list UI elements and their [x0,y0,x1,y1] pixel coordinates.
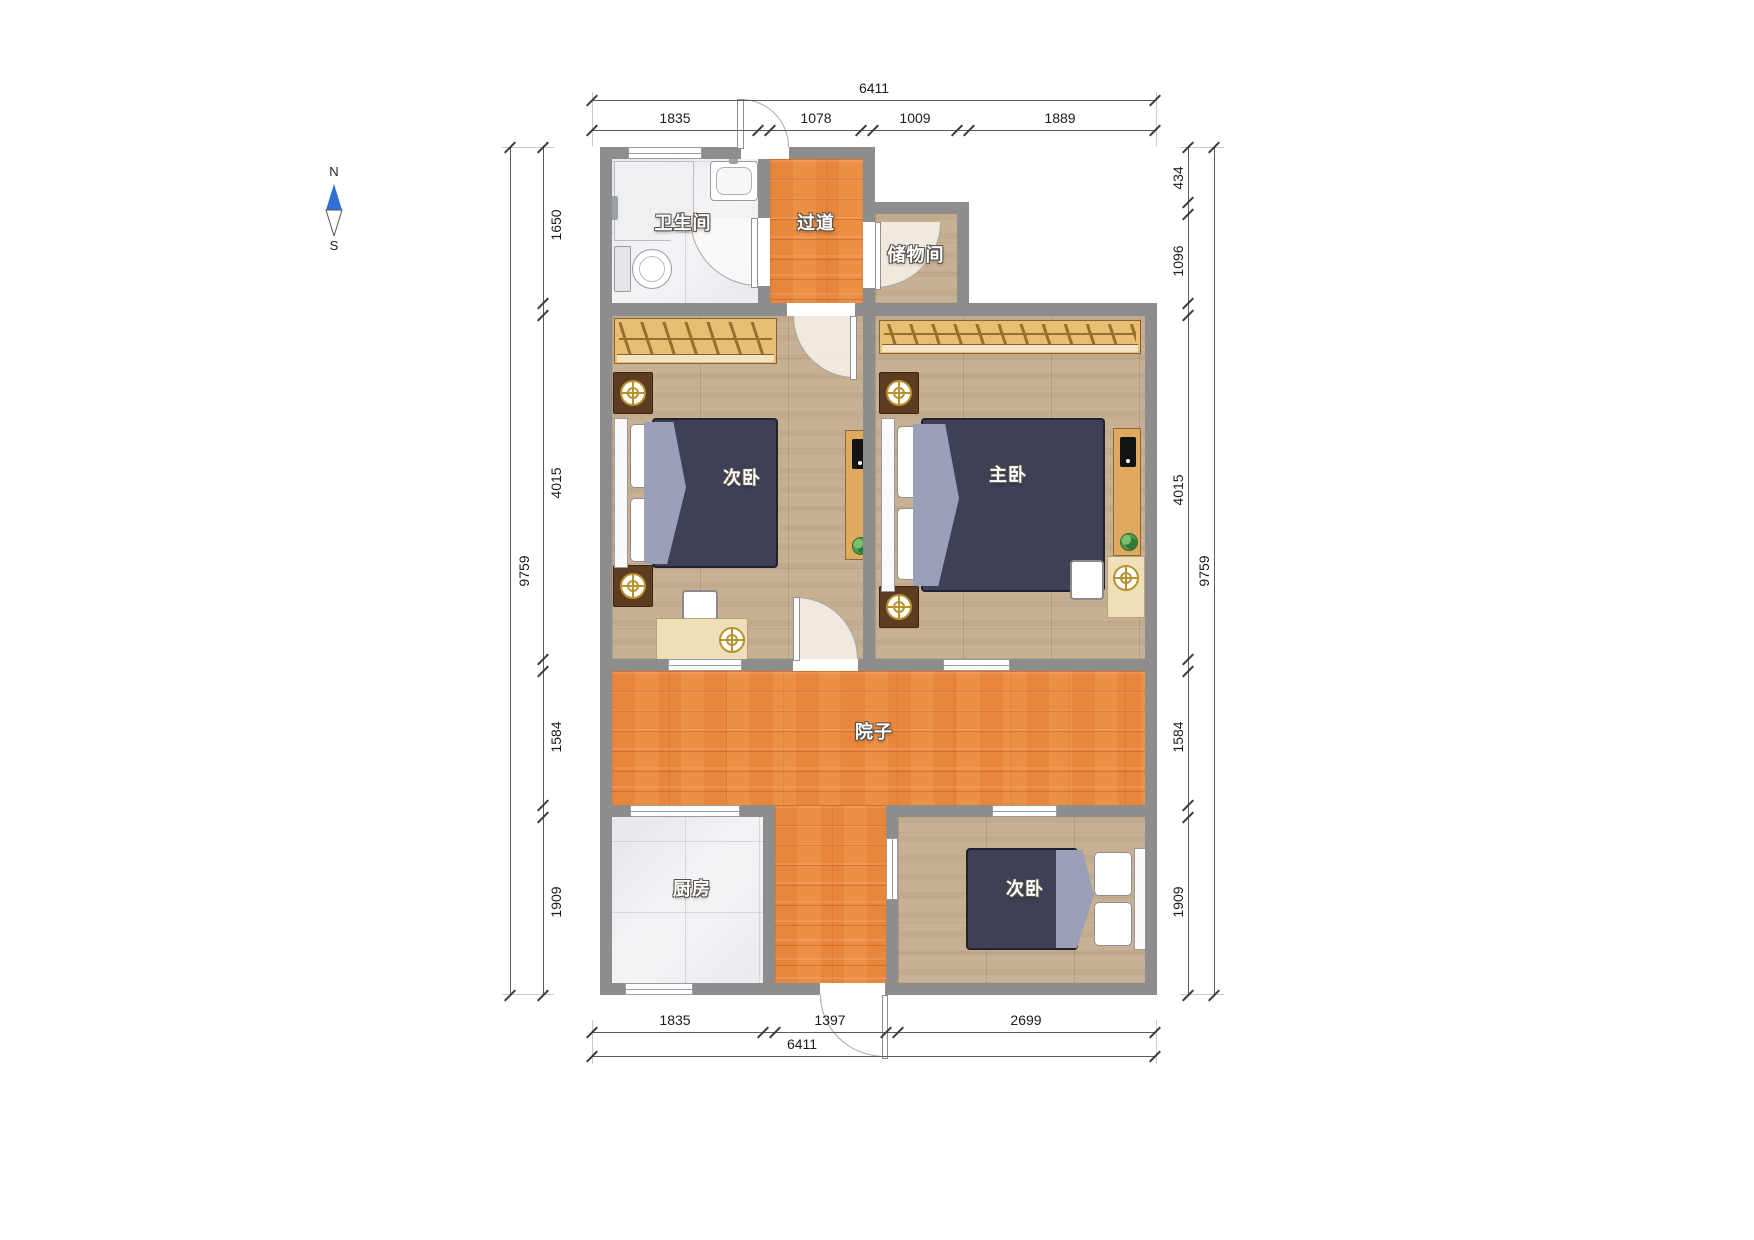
door-opening [787,303,855,316]
door-opening [863,222,875,288]
toilet-bowl [632,249,672,289]
wall [600,147,612,995]
bed-north [614,418,778,568]
window [668,659,742,671]
window [630,805,740,817]
dim-bottom-seg3: 2699 [1010,1012,1041,1028]
lamp-icon [1113,565,1139,591]
wall [855,303,1157,316]
door-leaf [737,99,744,149]
plant-icon [1120,533,1138,551]
corridor-floor [775,805,886,983]
dim-left-seg4: 1909 [548,870,564,934]
window [992,805,1057,817]
room-label-courtyard: 院子 [855,718,893,744]
door-leaf [882,995,888,1059]
dim-top-seg3: 1009 [899,110,930,126]
dim-bottom-seg1: 1835 [659,1012,690,1028]
door-leaf [850,316,857,380]
dim-top-total: 6411 [859,80,889,96]
dim-top-seg1: 1835 [659,110,690,126]
dim-right-seg4: 1584 [1170,705,1186,769]
lamp-icon [886,594,912,620]
wall [1145,303,1157,995]
door-leaf [793,597,800,661]
dim-left-seg3: 1584 [548,705,564,769]
dim-line [1214,147,1215,995]
door-opening [793,659,858,671]
toilet-tank [614,246,631,292]
dim-extension [1156,1020,1157,1064]
wall [886,805,898,995]
room-label-bedroom-north: 次卧 [723,464,761,490]
dim-right-seg1: 434 [1170,146,1186,210]
room-label-kitchen: 厨房 [673,875,711,901]
wardrobe-north [614,318,777,364]
lamp-icon [620,380,646,406]
door-arc-entry-north [741,99,789,147]
dim-top-seg2: 1078 [800,110,831,126]
door-leaf [875,222,881,290]
tv-panel-master [1113,428,1141,556]
pillow [1094,852,1132,896]
dim-left-seg2: 4015 [548,451,564,515]
dim-line [510,147,511,995]
compass-south-label: S [324,238,344,253]
room-label-bathroom: 卫生间 [655,209,712,235]
dim-left-total: 9759 [516,539,532,603]
dim-line [543,147,544,995]
window [625,983,693,995]
wall [763,805,775,995]
door-leaf [751,218,758,288]
wall [885,983,1157,995]
room-label-master-bedroom: 主卧 [989,461,1027,487]
lamp-icon [620,573,646,599]
stool [1070,560,1104,600]
bed-headboard [614,418,628,568]
dim-right-seg3: 4015 [1170,458,1186,522]
wall [875,202,969,214]
room-label-hallway: 过道 [797,209,835,235]
dim-top-seg4: 1889 [1044,110,1075,126]
dim-right-total: 9759 [1196,539,1212,603]
door-opening [758,218,770,286]
floorplan-canvas: N S [0,0,1754,1240]
window [943,659,1010,671]
dim-bottom-total: 6411 [787,1036,817,1052]
bed-blanket-fold [1056,850,1094,948]
room-label-bedroom-south: 次卧 [1006,875,1044,901]
window [628,147,702,159]
dim-right-seg5: 1909 [1170,870,1186,934]
dim-right-seg2: 1096 [1170,229,1186,293]
tv-icon [1120,437,1136,467]
bed-headboard [881,418,895,592]
bathroom-sink [710,161,758,201]
door-opening [820,983,885,995]
compass-north-label: N [324,164,344,179]
lamp-icon [886,380,912,406]
dim-bottom-seg2: 1397 [814,1012,845,1028]
wall [957,202,969,316]
dim-line [592,1056,1157,1057]
pillow [1094,902,1132,946]
room-label-storage: 储物间 [888,241,945,267]
bed-south [966,848,1146,950]
dim-line [592,100,1157,101]
wall [600,303,787,316]
dim-line [1188,147,1189,995]
door-opening [741,147,789,159]
window [886,838,898,900]
wardrobe-master [879,320,1141,354]
dim-left-seg1: 1650 [548,193,564,257]
compass-needle-icon [325,184,343,236]
dim-line [592,1032,1157,1033]
lamp-icon [719,627,745,653]
